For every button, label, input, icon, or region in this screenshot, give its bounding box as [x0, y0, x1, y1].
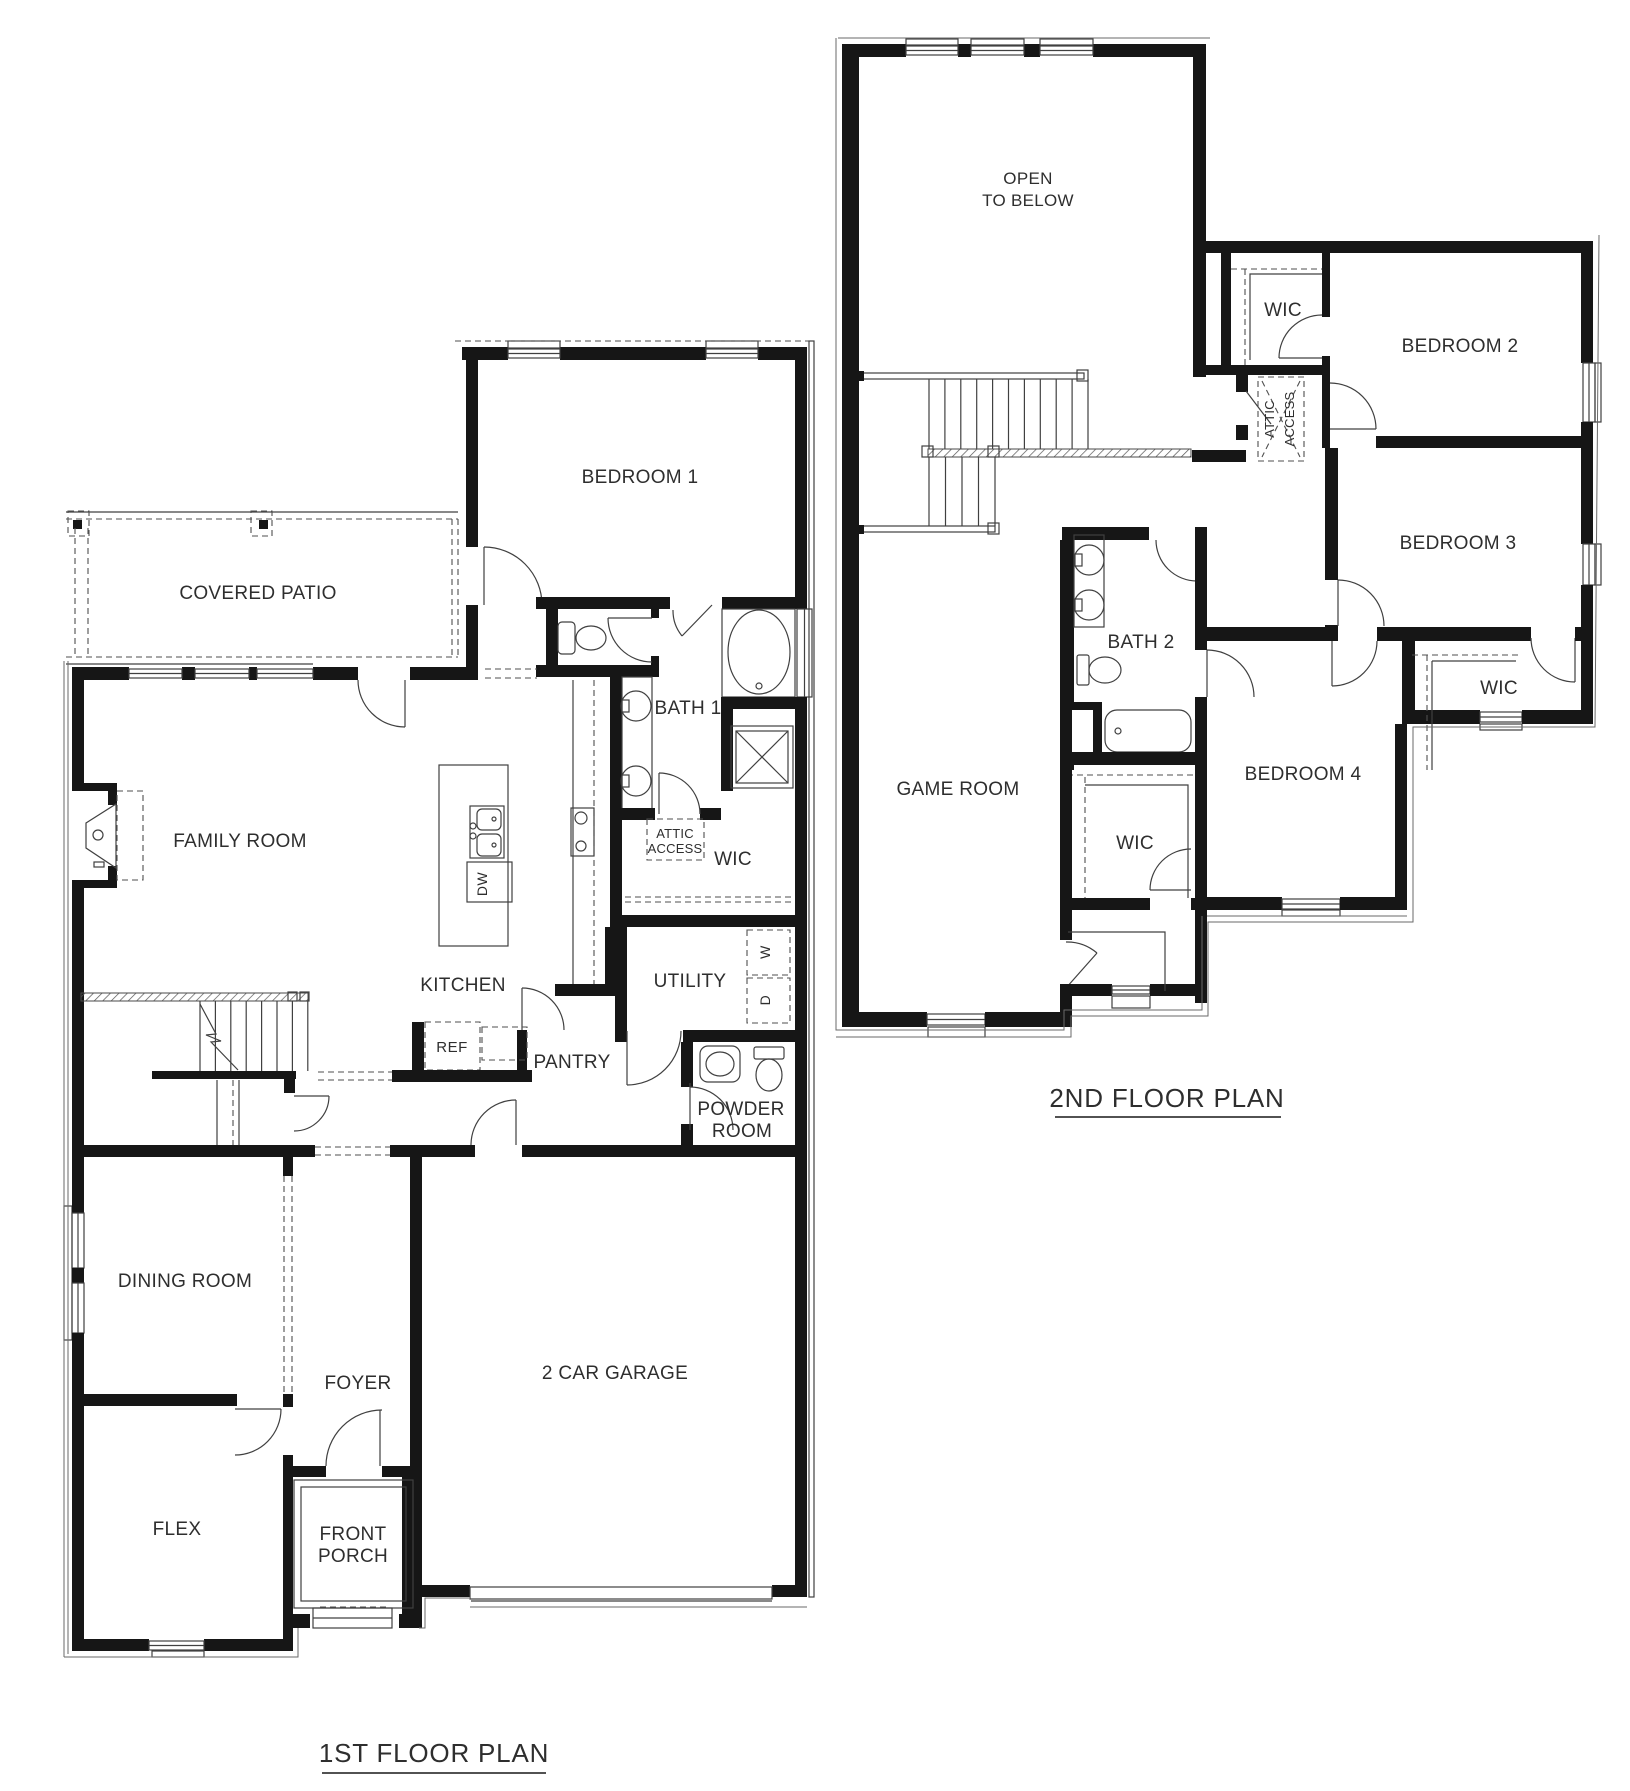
svg-text:DW: DW [474, 872, 490, 897]
svg-text:GAME ROOM: GAME ROOM [896, 779, 1019, 800]
svg-text:ACCESS: ACCESS [648, 841, 703, 856]
svg-text:BEDROOM 1: BEDROOM 1 [582, 467, 699, 488]
svg-text:1ST FLOOR PLAN: 1ST FLOOR PLAN [319, 1738, 549, 1768]
svg-text:COVERED PATIO: COVERED PATIO [179, 583, 336, 604]
svg-text:FAMILY ROOM: FAMILY ROOM [173, 831, 307, 852]
svg-text:FRONT: FRONT [320, 1524, 387, 1545]
svg-text:TO BELOW: TO BELOW [982, 191, 1074, 210]
svg-text:OPEN: OPEN [1003, 169, 1052, 188]
svg-text:ACCESS: ACCESS [1282, 392, 1297, 447]
svg-text:FOYER: FOYER [325, 1373, 392, 1394]
svg-text:ROOM: ROOM [712, 1121, 772, 1142]
svg-text:FLEX: FLEX [153, 1519, 202, 1540]
svg-text:BATH 2: BATH 2 [1108, 632, 1175, 653]
svg-text:W: W [757, 945, 773, 959]
svg-text:ATTIC: ATTIC [1262, 400, 1277, 438]
svg-text:REF: REF [436, 1039, 468, 1056]
svg-text:BEDROOM 4: BEDROOM 4 [1245, 764, 1362, 785]
svg-text:WIC: WIC [714, 849, 752, 870]
svg-text:BATH 1: BATH 1 [655, 698, 722, 719]
svg-text:POWDER: POWDER [697, 1099, 784, 1120]
svg-text:BEDROOM 2: BEDROOM 2 [1402, 336, 1519, 357]
svg-text:PANTRY: PANTRY [533, 1052, 610, 1073]
svg-text:KITCHEN: KITCHEN [420, 975, 506, 996]
svg-text:PORCH: PORCH [318, 1546, 388, 1567]
svg-text:2 CAR GARAGE: 2 CAR GARAGE [542, 1363, 688, 1384]
svg-text:2ND FLOOR PLAN: 2ND FLOOR PLAN [1049, 1083, 1284, 1113]
svg-text:ATTIC: ATTIC [656, 826, 694, 841]
svg-text:WIC: WIC [1480, 678, 1518, 699]
svg-text:WIC: WIC [1264, 300, 1302, 321]
svg-text:UTILITY: UTILITY [654, 971, 727, 992]
svg-text:WIC: WIC [1116, 833, 1154, 854]
svg-text:BEDROOM 3: BEDROOM 3 [1400, 533, 1517, 554]
svg-text:DINING ROOM: DINING ROOM [118, 1271, 252, 1292]
svg-text:D: D [757, 995, 773, 1006]
